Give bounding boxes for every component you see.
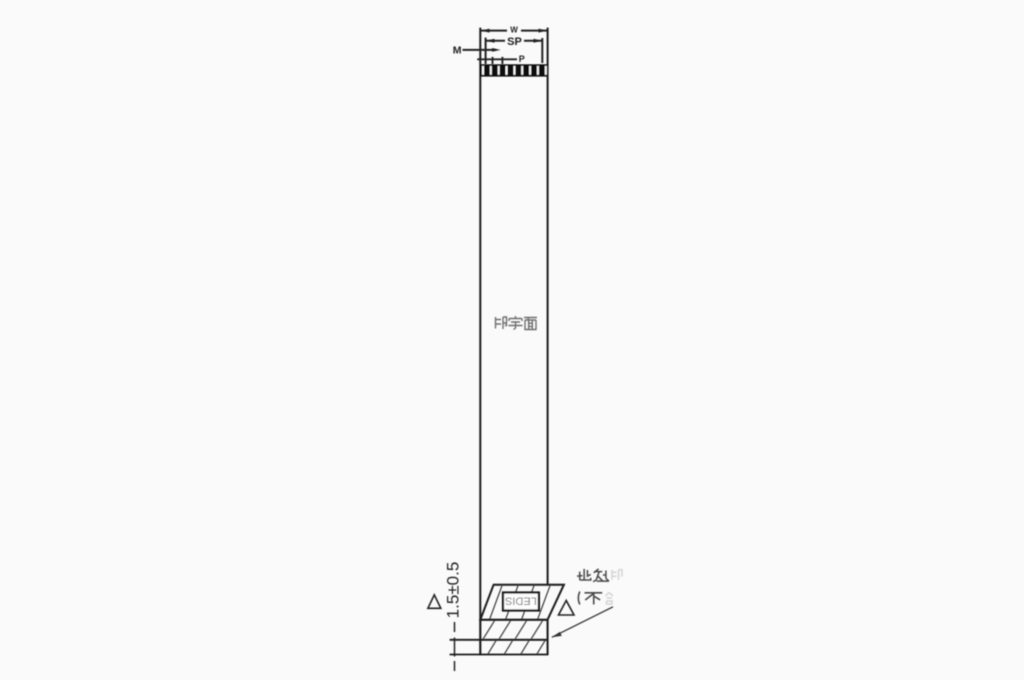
svg-text:LEDIS: LEDIS: [505, 595, 537, 607]
svg-text:M: M: [453, 44, 462, 56]
svg-text:P: P: [519, 54, 525, 64]
svg-text:W: W: [510, 26, 518, 35]
svg-text:1.5±0.5: 1.5±0.5: [444, 562, 463, 619]
svg-text:SP: SP: [507, 36, 522, 48]
